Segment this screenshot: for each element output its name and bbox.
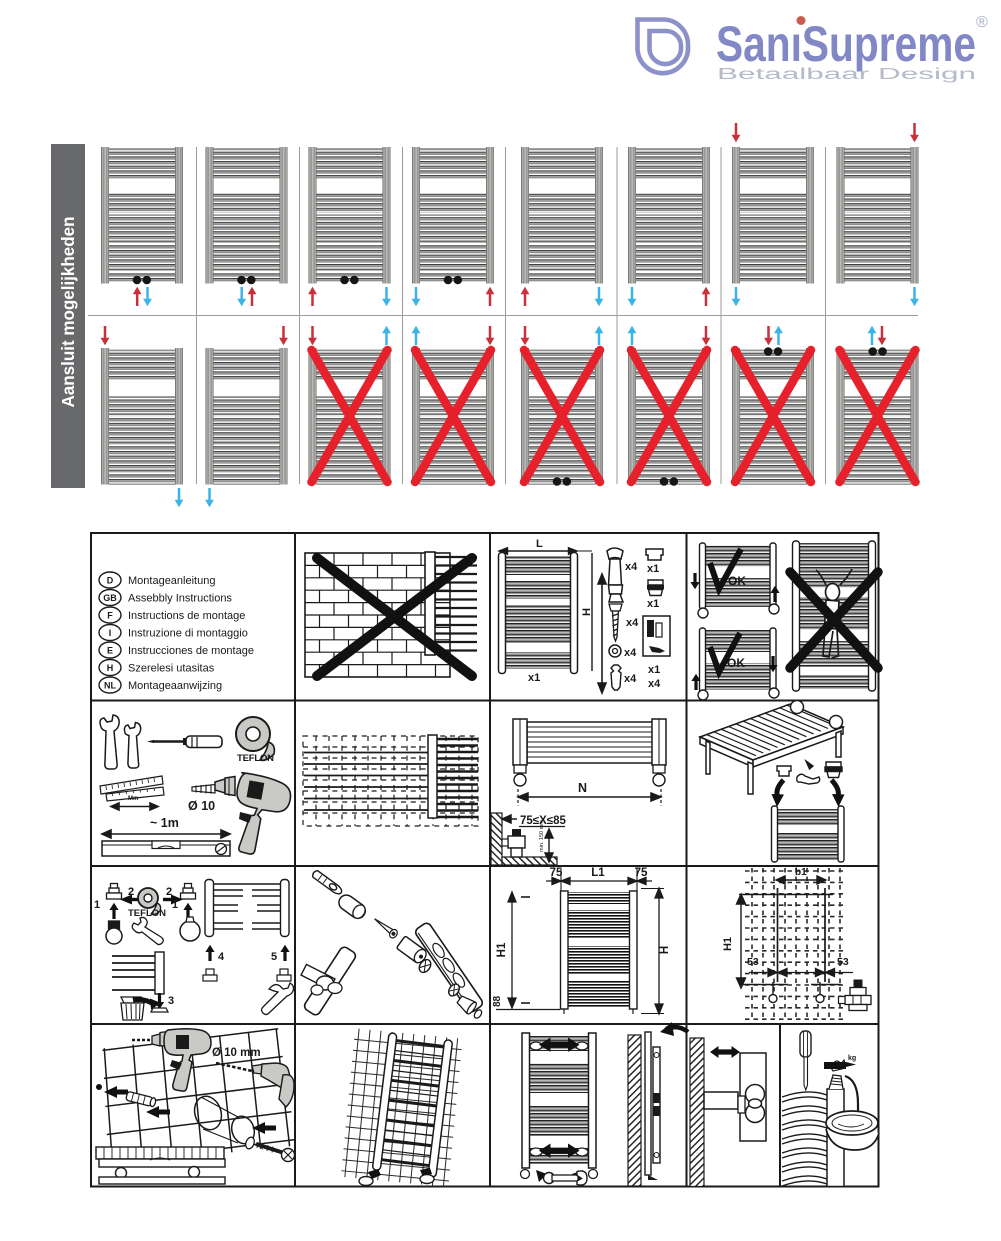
svg-text:5: 5 [271,951,277,963]
svg-text:H1: H1 [722,937,734,951]
svg-text:x4: x4 [624,673,637,685]
svg-text:NL: NL [104,681,116,691]
svg-text:I: I [109,628,112,638]
svg-text:L: L [536,538,543,550]
svg-text:H: H [659,946,671,954]
svg-text:Betaalbaar Design: Betaalbaar Design [717,66,976,83]
svg-text:x1: x1 [647,563,659,575]
svg-text:Assebbly Instructions: Assebbly Instructions [128,593,232,605]
svg-text:OK: OK [728,574,746,588]
svg-text:Szerelesi utasitas: Szerelesi utasitas [128,663,215,675]
svg-text:2: 2 [128,886,134,898]
svg-text:~ 1m: ~ 1m [150,816,179,830]
svg-text:x1: x1 [648,664,660,676]
svg-text:Ø 10 mm: Ø 10 mm [212,1047,261,1059]
svg-text:Mm: Mm [128,796,138,802]
svg-text:Instrucciones de montage: Instrucciones de montage [128,645,254,657]
svg-text:OK: OK [727,656,745,670]
svg-text:GB: GB [103,593,117,603]
svg-text:D: D [107,576,114,586]
svg-text:®: ® [976,14,988,31]
svg-text:4: 4 [218,951,225,963]
svg-text:b1: b1 [795,867,807,878]
svg-text:N: N [578,781,587,795]
svg-text:Montageanleitung: Montageanleitung [128,575,215,587]
svg-text:1: 1 [172,899,178,911]
svg-text:1: 1 [94,899,100,911]
svg-text:H: H [107,663,114,673]
svg-text:x4: x4 [625,561,638,573]
svg-text:TEFLON: TEFLON [128,908,166,919]
svg-text:E: E [107,646,113,656]
svg-text:Montageaanwijzing: Montageaanwijzing [128,680,222,692]
svg-text:x4: x4 [624,647,637,659]
svg-text:TEFLON: TEFLON [237,753,274,764]
svg-text:53: 53 [747,956,759,968]
svg-text:Instructions de montage: Instructions de montage [128,610,245,622]
svg-text:88: 88 [492,995,503,1007]
svg-text:F: F [107,611,113,621]
svg-text:H1: H1 [496,942,508,957]
svg-text:SanıSupreme: SanıSupreme [716,16,976,72]
svg-text:kg: kg [848,1055,856,1062]
svg-text:L1: L1 [591,867,605,879]
svg-text:min. 150 mm: min. 150 mm [539,820,545,852]
svg-text:H: H [581,608,593,616]
svg-text:53: 53 [837,956,849,968]
svg-text:Instruzione di montaggio: Instruzione di montaggio [128,628,248,640]
svg-text:x4: x4 [648,678,661,690]
svg-text:x4: x4 [626,617,639,629]
svg-text:Aansluit mogelijkheden: Aansluit mogelijkheden [58,217,78,408]
svg-text:2: 2 [166,886,172,898]
svg-text:x1: x1 [528,672,540,684]
svg-text:Ø 10: Ø 10 [188,799,215,813]
svg-text:3: 3 [168,995,174,1007]
svg-text:x1: x1 [647,598,659,610]
